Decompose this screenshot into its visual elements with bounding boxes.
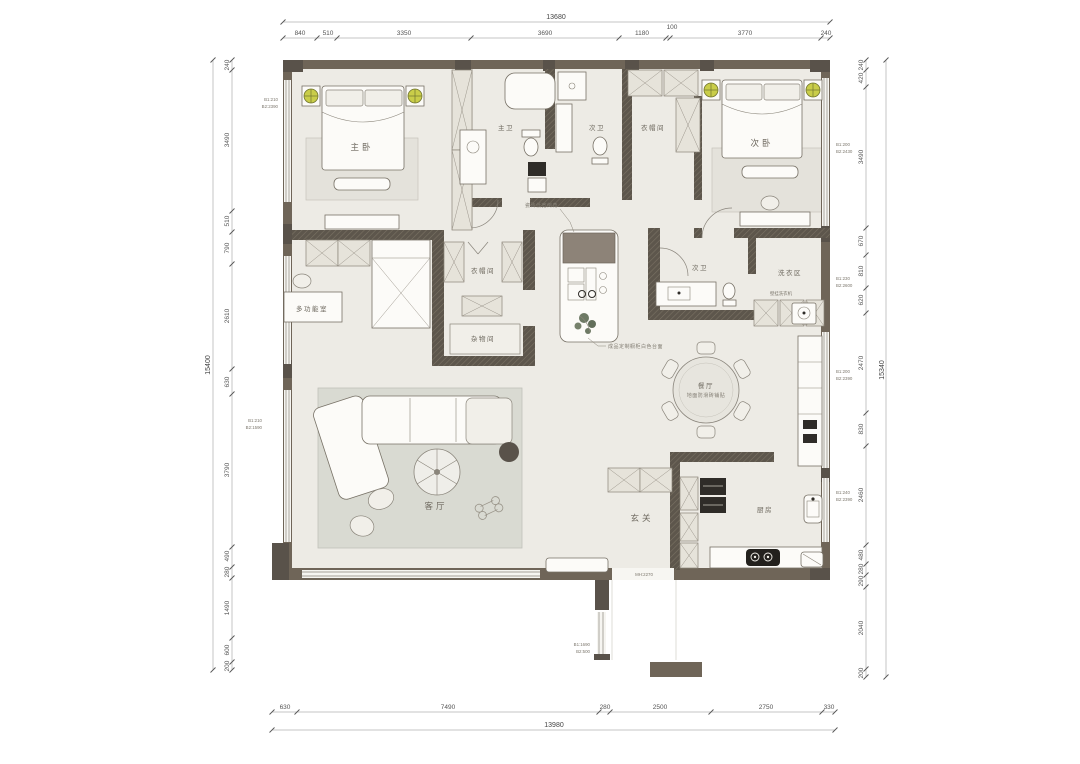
window-left-3	[284, 390, 291, 542]
bed-bench	[742, 166, 798, 178]
note-win-right-1a: B1:200	[836, 142, 850, 147]
toilet-tank	[522, 130, 540, 137]
dim-right-1: 420	[858, 72, 865, 83]
dining-chair	[697, 342, 715, 354]
dim-right-6: 2470	[858, 355, 865, 370]
dim-left-11: 200	[224, 660, 231, 671]
lamp-icon	[704, 83, 718, 97]
note-win-right-3a: B1:200	[836, 369, 850, 374]
guest-bed	[372, 240, 430, 328]
dim-left-10: 600	[224, 644, 231, 655]
dim-right-5: 620	[858, 294, 865, 305]
oven	[700, 478, 726, 495]
note-stub-2: B2:500	[576, 649, 590, 654]
note-win-left-mid-1: B1:210	[248, 418, 262, 423]
island-counter	[563, 233, 615, 263]
porch-wall	[650, 662, 702, 677]
note-win-left-top-2: B2:2390	[262, 104, 279, 109]
dim-left-5: 630	[224, 376, 231, 387]
dim-left-9: 1490	[224, 600, 231, 615]
window-left-1	[284, 80, 291, 202]
multifunction-cabinets	[306, 240, 370, 266]
dim-left-7: 490	[224, 550, 231, 561]
appliance	[803, 434, 817, 443]
kitchen-island	[560, 230, 618, 342]
toilet-tank	[592, 158, 608, 164]
shower	[558, 72, 586, 100]
dim-right-2: 3490	[858, 149, 865, 164]
dining-sideboard	[798, 336, 822, 466]
washbasin-column	[528, 162, 546, 176]
dim-labels-right: 15340 240 420 3490 670 810 620 2470 830 …	[858, 59, 886, 678]
window-right-1	[822, 78, 829, 226]
note-stub-1: B1:1690	[574, 642, 591, 647]
dim-top-7: 240	[821, 30, 832, 37]
label-laundry: 洗衣区	[778, 268, 802, 277]
bathtub	[505, 73, 555, 109]
dim-labels-top: 13680 840 510 3350 3690 1180 100 3770 24…	[295, 14, 832, 37]
note-win-right-2b: B2:2600	[836, 283, 853, 288]
chair	[293, 274, 311, 288]
dim-bottom-2: 280	[600, 704, 611, 711]
dim-left-1: 3490	[224, 132, 231, 147]
dim-right-11: 290	[858, 575, 865, 586]
console-table	[325, 215, 399, 229]
label-bath-top: 次卫	[589, 123, 605, 132]
note-island-top: 瓷砖低宽倒角	[525, 202, 558, 209]
dim-left-6: 3790	[224, 462, 231, 477]
toilet-tank	[723, 300, 736, 306]
dim-right-8: 2460	[858, 487, 865, 502]
dim-top-3: 3690	[538, 30, 553, 37]
note-win-right-1b: B2:2430	[836, 149, 853, 154]
kitchen-tall-cabinets	[680, 477, 698, 568]
dim-bottom-3: 2500	[653, 704, 668, 711]
label-master-bath: 主卫	[498, 123, 514, 132]
appliance	[803, 420, 817, 429]
entry-shoe-bench	[608, 468, 672, 492]
label-cloak-top: 衣帽间	[641, 123, 665, 132]
vanity	[556, 104, 572, 152]
ottoman	[466, 398, 512, 444]
label-dining: 餐厅	[698, 381, 714, 390]
bed-bench	[334, 178, 390, 190]
label-cloak-mid: 衣帽间	[471, 266, 495, 275]
dim-right-9: 480	[858, 549, 865, 560]
dim-top-2: 3350	[397, 30, 412, 37]
toilet	[723, 283, 735, 299]
label-storage: 杂物间	[471, 334, 495, 343]
label-bath-mid: 次卫	[692, 263, 708, 272]
dim-left-8: 280	[224, 566, 231, 577]
dim-top-6: 3770	[738, 30, 753, 37]
label-entry: 玄关	[630, 513, 653, 523]
dim-left-total: 15400	[205, 355, 212, 375]
dim-top-4: 1180	[635, 30, 649, 37]
side-table	[499, 442, 519, 462]
lamp-icon	[408, 89, 422, 103]
dim-bottom-total: 13980	[544, 722, 564, 729]
dim-right-10: 280	[858, 563, 865, 574]
label-dining-note: 地面防滑砖铺贴	[687, 392, 726, 399]
dim-top-0: 840	[295, 30, 306, 37]
label-second-bedroom: 次卧	[750, 138, 773, 148]
toilet	[524, 138, 538, 156]
note-washer: 壁挂洗衣机	[770, 290, 793, 297]
label-living: 客厅	[424, 501, 447, 511]
dim-top-5: 100	[667, 24, 678, 31]
note-win-left-mid-2: B2:1590	[246, 425, 263, 430]
dim-left-0: 240	[224, 59, 231, 70]
note-win-left-top-1: B1:210	[264, 97, 278, 102]
note-win-right-4b: B2:2390	[836, 497, 853, 502]
dim-left-4: 2610	[224, 308, 231, 323]
label-kitchen: 厨房	[757, 505, 773, 514]
dim-labels-bottom: 13980 630 7490 280 2500 2750 330	[280, 704, 835, 729]
washing-machine	[792, 303, 816, 324]
dim-right-12: 2040	[858, 620, 865, 635]
desk	[740, 212, 810, 226]
dim-left-2: 510	[224, 215, 231, 226]
chair	[761, 196, 779, 210]
lamp-icon	[304, 89, 318, 103]
dim-bottom-5: 330	[824, 704, 835, 711]
window-right-3	[822, 478, 829, 542]
note-island-bottom: 成品定制橱柜白色台面	[608, 343, 663, 350]
toilet	[593, 137, 607, 155]
dining-chair	[697, 426, 715, 438]
label-master-bedroom: 主卧	[350, 142, 373, 152]
dim-right-13: 200	[858, 667, 865, 678]
vanity	[656, 282, 716, 306]
dim-labels-left: 15400 240 3490 510 790 2610 630 3790 490…	[205, 59, 231, 671]
dim-right-0: 240	[858, 59, 865, 70]
entry-and-stub	[594, 568, 702, 677]
dim-bottom-0: 630	[280, 704, 291, 711]
vanity	[460, 130, 486, 184]
window-right-2	[822, 332, 829, 468]
tv-console	[546, 558, 608, 572]
dim-left-3: 790	[224, 242, 231, 253]
lamp-icon	[806, 83, 820, 97]
dim-bottom-4: 2750	[759, 704, 774, 711]
dim-right-total: 15340	[879, 360, 886, 380]
dim-top-1: 510	[323, 30, 334, 37]
floor-plan-canvas: 13680 840 510 3350 3690 1180 100 3770 24…	[0, 0, 1080, 764]
window-bottom	[302, 570, 540, 578]
coffee-table	[414, 449, 460, 495]
dim-bottom-1: 7490	[441, 704, 456, 711]
dim-right-3: 670	[858, 235, 865, 246]
floor-plan-svg: 13680 840 510 3350 3690 1180 100 3770 24…	[0, 0, 1080, 764]
note-win-right-2a: B1:230	[836, 276, 850, 281]
dim-right-4: 810	[858, 265, 865, 276]
note-entry-door: MH:2270	[635, 572, 653, 577]
note-win-right-4a: B1:240	[836, 490, 850, 495]
dim-top-total: 13680	[546, 14, 566, 21]
label-multifunction: 多功能室	[296, 304, 328, 313]
dim-right-7: 830	[858, 423, 865, 434]
note-win-right-3b: B2:2390	[836, 376, 853, 381]
